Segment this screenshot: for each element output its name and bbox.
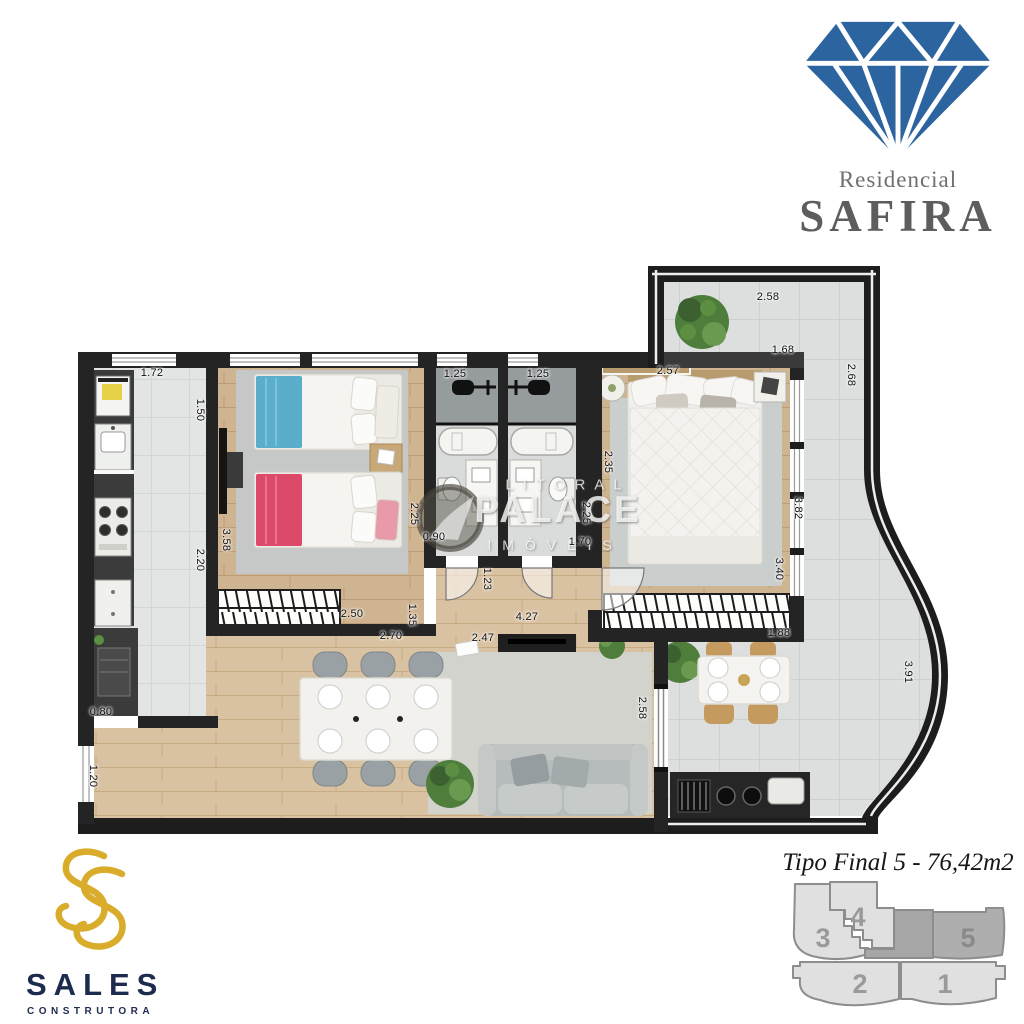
dim-hall-width: 1.70 bbox=[569, 536, 592, 548]
dim-terrace-door: 2.58 bbox=[636, 697, 648, 720]
bbq-sink bbox=[768, 778, 804, 804]
dim-wardrobe-side: 1.35 bbox=[406, 604, 418, 627]
keyplan-unit-2 bbox=[793, 962, 899, 1005]
bed-single-pink bbox=[254, 472, 402, 548]
dim-bath1-top: 1.25 bbox=[444, 368, 467, 380]
dim-bedroom2-left: 3.58 bbox=[220, 529, 232, 552]
diamond-icon bbox=[793, 10, 1003, 160]
master-door-floor bbox=[588, 568, 602, 610]
keyplan-label-2: 2 bbox=[852, 969, 867, 999]
dim-kitchen-upper: 1.50 bbox=[194, 399, 206, 422]
toilet bbox=[549, 477, 575, 501]
plant bbox=[675, 295, 729, 349]
dim-master-right-upper: 3.82 bbox=[792, 497, 804, 520]
dim-wardrobe2-width: 2.50 bbox=[341, 608, 364, 620]
safira-residencial-text: Residencial bbox=[790, 167, 1006, 193]
dim-kitchen-top: 1.72 bbox=[141, 367, 164, 379]
window bbox=[112, 354, 176, 366]
vanity bbox=[510, 460, 541, 526]
bed-single-blue bbox=[254, 374, 402, 450]
dim-living-length: 4.27 bbox=[516, 611, 539, 623]
counter-divider bbox=[92, 470, 134, 474]
window bbox=[437, 354, 467, 366]
kitchen-lower-counter bbox=[90, 628, 138, 716]
dim-dining-top: 2.70 bbox=[380, 630, 403, 642]
dining-set bbox=[300, 652, 452, 786]
dim-terrace-inner: 1.68 bbox=[772, 344, 795, 356]
dim-master-right-lower: 3.40 bbox=[773, 558, 785, 581]
master-terrace-window bbox=[790, 380, 804, 596]
wardrobe bbox=[218, 590, 340, 626]
dim-terrace-table: 1.88 bbox=[768, 627, 791, 639]
dim-terrace-right: 2.68 bbox=[845, 364, 857, 387]
window bbox=[230, 354, 300, 366]
keyplan-label-3: 3 bbox=[815, 923, 830, 953]
sales-name-text: SALES bbox=[26, 967, 198, 1003]
nightstand-left bbox=[599, 375, 625, 401]
dim-master-top: 2.57 bbox=[657, 365, 680, 377]
safira-name-text: SAFIRA bbox=[790, 194, 1006, 239]
dim-terrace-curve: 3.91 bbox=[902, 661, 914, 684]
bathtub bbox=[511, 428, 573, 455]
blanket-fold bbox=[630, 536, 760, 562]
terrace-slider-door bbox=[654, 684, 668, 772]
toilet bbox=[438, 477, 461, 501]
residencial-safira-logo: Residencial SAFIRA bbox=[790, 10, 1006, 239]
wardrobe bbox=[604, 594, 790, 630]
nightstand-right bbox=[754, 372, 786, 402]
stove bbox=[95, 498, 131, 556]
kitchen-cabinet bbox=[95, 580, 131, 626]
dim-bath2-side: 2.25 bbox=[580, 502, 592, 525]
dim-hall-depth: 1.23 bbox=[481, 568, 493, 591]
keyplan-label-4: 4 bbox=[850, 902, 865, 932]
keyplan-label-5: 5 bbox=[960, 923, 975, 953]
window bbox=[508, 354, 538, 366]
keyplan-label-1: 1 bbox=[937, 969, 952, 999]
sofa bbox=[478, 744, 648, 816]
dim-bath2-top: 1.25 bbox=[527, 368, 550, 380]
dim-kitchen-lower: 2.20 bbox=[194, 549, 206, 572]
dim-bath-door: 0.90 bbox=[423, 531, 446, 543]
dim-left-lower: 1.20 bbox=[87, 765, 99, 788]
dim-terrace-top: 2.58 bbox=[757, 291, 780, 303]
keyplan: 3 4 5 2 1 bbox=[780, 870, 1024, 1020]
bbq-counter bbox=[670, 772, 810, 818]
sales-subtitle-text: CONSTRUTORA bbox=[27, 1006, 198, 1017]
dim-master-left: 2.35 bbox=[602, 451, 614, 474]
dim-living-top: 2.47 bbox=[472, 632, 495, 644]
nightstand bbox=[370, 444, 402, 472]
fridge bbox=[96, 376, 130, 416]
vanity bbox=[466, 460, 497, 526]
kitchen bbox=[90, 370, 138, 716]
dim-bath1-side: 2.25 bbox=[408, 503, 420, 526]
kitchen-pass bbox=[94, 718, 138, 726]
floorplan-marketing-sheet: LITORAL PALACE IMÓVEIS 2.58 1.68 2.68 1.… bbox=[0, 0, 1024, 1024]
keyplan-unit-1 bbox=[901, 962, 1005, 1004]
kitchen-sink bbox=[95, 424, 131, 470]
sales-construtora-logo: SALES CONSTRUTORA bbox=[18, 846, 198, 1017]
dim-kitchen-bottom: 0.80 bbox=[90, 706, 113, 718]
dining-left-floor bbox=[94, 728, 206, 818]
window bbox=[312, 354, 418, 366]
plant bbox=[426, 760, 474, 808]
bathtub bbox=[439, 428, 497, 455]
sales-monogram-icon bbox=[40, 846, 150, 958]
